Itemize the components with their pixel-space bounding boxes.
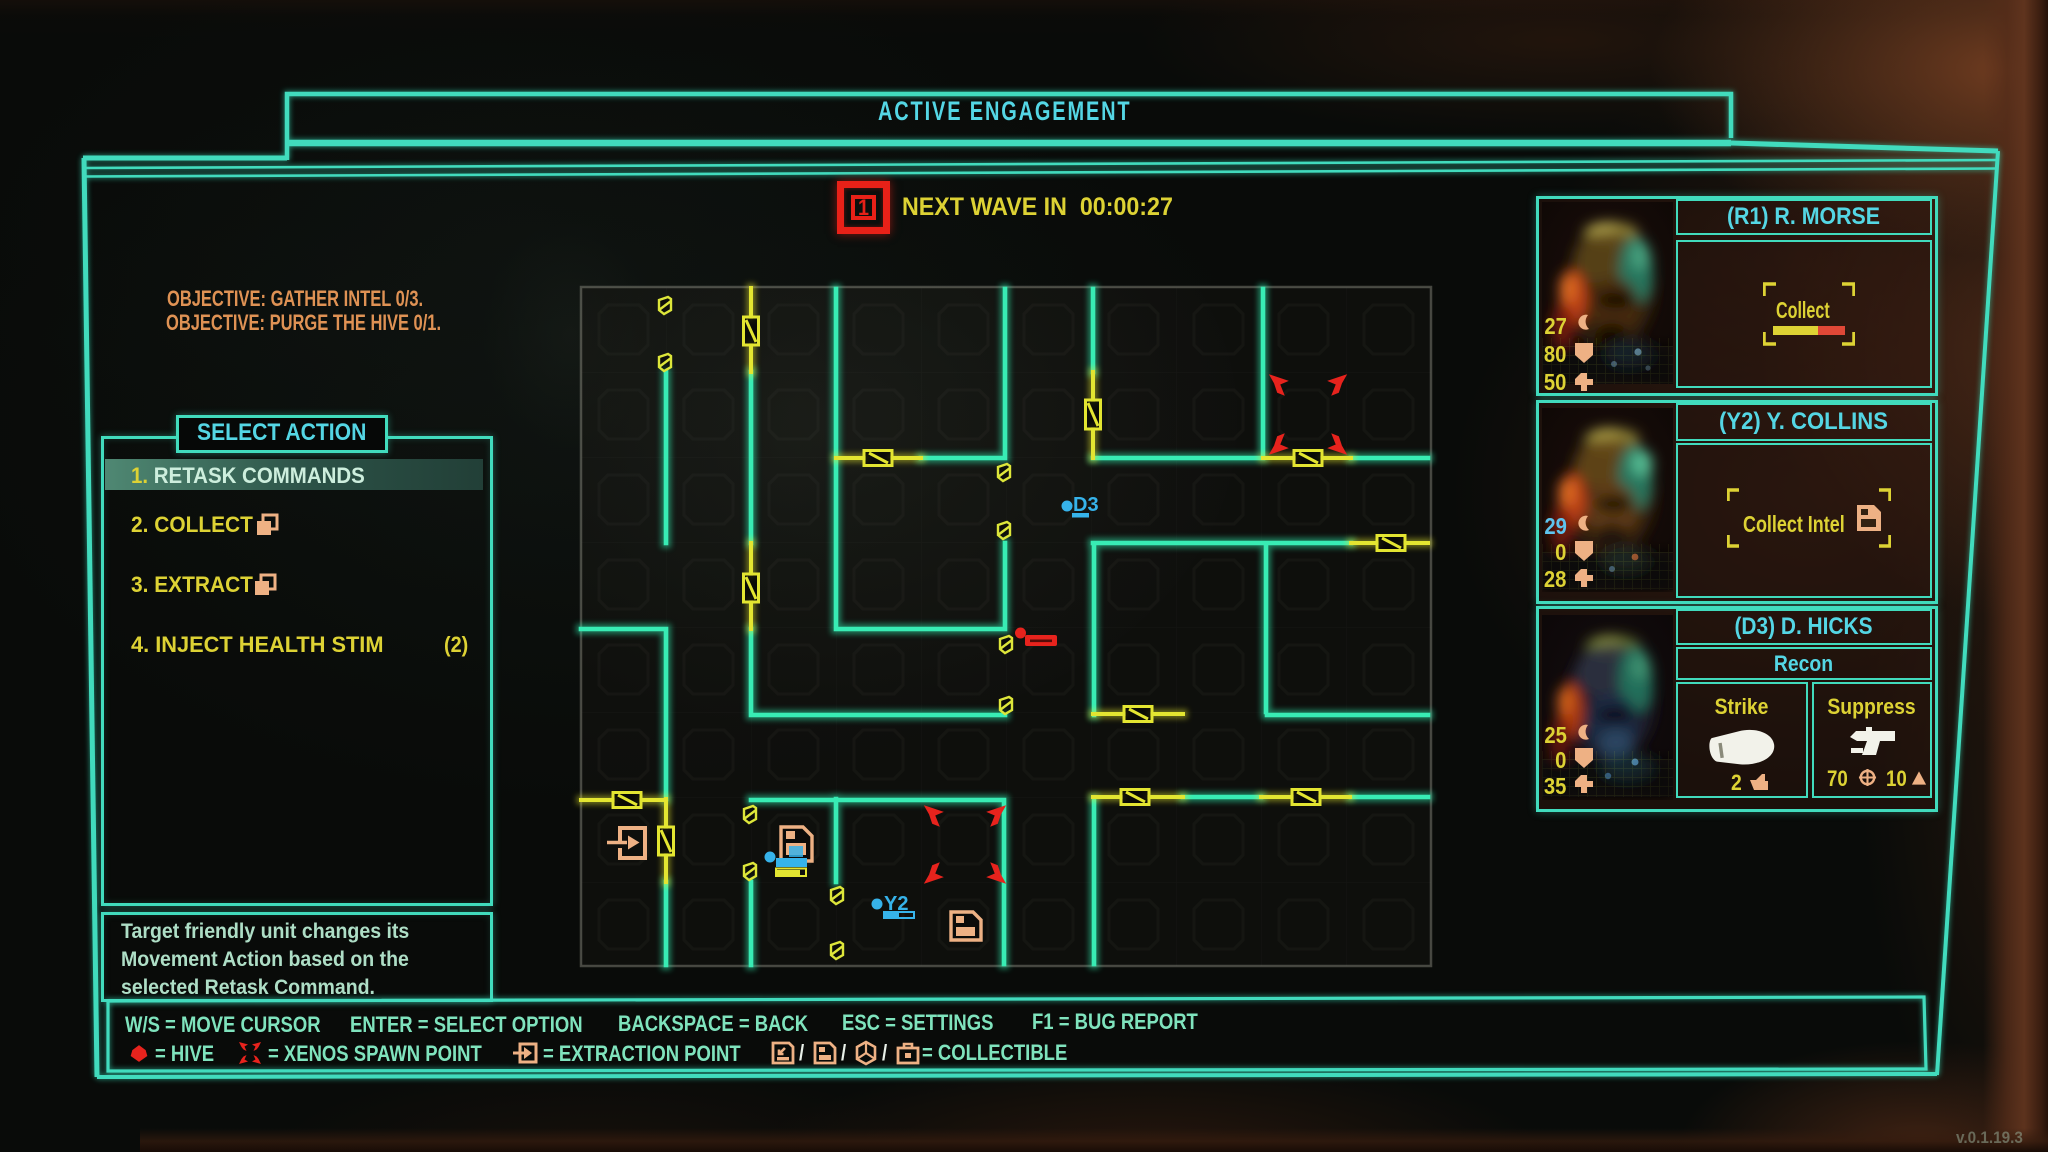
svg-text:D3: D3 bbox=[1073, 494, 1099, 516]
